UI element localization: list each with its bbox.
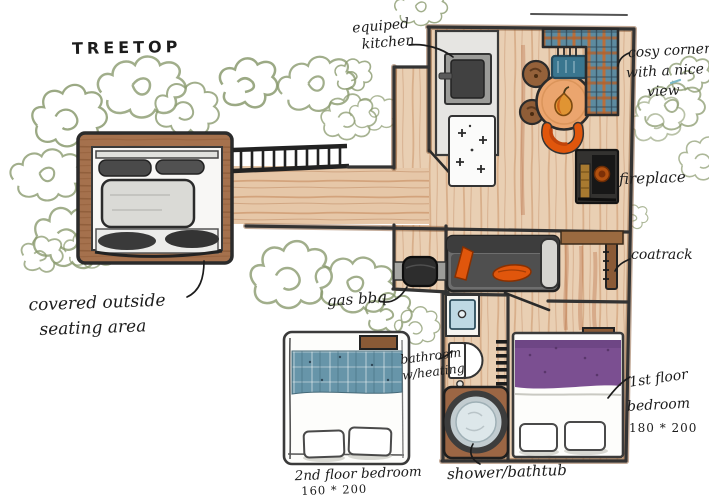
bedroom1-bed: [513, 328, 623, 457]
deck-table: [102, 180, 194, 227]
bathroom-sink: [446, 295, 479, 336]
bridge-floor: [222, 166, 447, 224]
shower-tub: [444, 387, 508, 458]
kitchen-sink: [439, 54, 491, 104]
fireplace-drawing: [576, 150, 618, 203]
kitchen-stove: [449, 116, 495, 186]
plan-drawing: [0, 0, 709, 500]
dining-table: [537, 75, 592, 130]
west-porch-floor: [394, 66, 429, 168]
sofa: [447, 236, 559, 291]
coatrack-drawing: [603, 242, 617, 289]
console-shelf: [561, 231, 623, 244]
deck-bench-bottom: [95, 229, 222, 256]
floor-plan-canvas: TREETOP equiped kitchen cosy corner with…: [0, 0, 709, 500]
